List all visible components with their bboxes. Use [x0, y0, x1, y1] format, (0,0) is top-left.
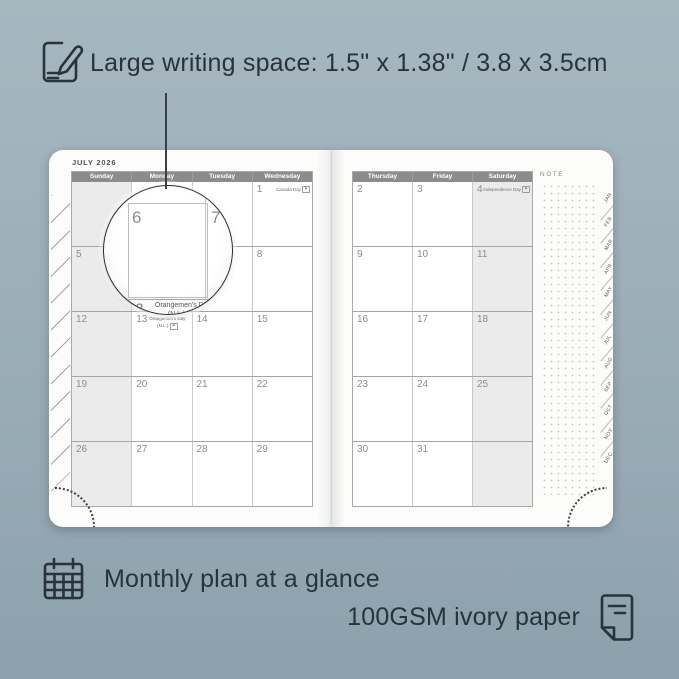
planner-product-image: Large writing space: 1.5" x 1.38" / 3.8 …: [0, 0, 679, 679]
date-number: 10: [417, 250, 428, 260]
month-tab-label: NOV: [603, 427, 613, 440]
magnifier-circle: 6 7 13 Orangemen's Day (N.L.)⚑: [103, 185, 233, 315]
calendar-row: 234Independence Day⚑: [353, 182, 532, 246]
calendar-cell: 2: [353, 182, 413, 246]
day-header-row: SundayMondayTuesdayWednesday: [72, 172, 312, 182]
calendar-cell: 24: [413, 377, 473, 441]
month-title: JULY 2026: [72, 158, 116, 167]
calendar-row: 26272829: [72, 441, 312, 506]
calendar-cell: 30: [353, 442, 413, 506]
calendar-cell: 9: [353, 247, 413, 311]
date-number: 11: [477, 250, 487, 260]
calendar-cell: 27: [132, 442, 192, 506]
date-number: 2: [357, 185, 363, 195]
calendar-row: 3031: [353, 441, 532, 506]
month-tab-label: MAR: [603, 238, 613, 251]
day-header-saturday: Saturday: [473, 172, 532, 182]
date-number: 15: [257, 315, 268, 325]
month-tab-label: OCT: [603, 404, 613, 417]
calendar-cell: 23: [353, 377, 413, 441]
date-number: 22: [257, 380, 268, 390]
calendar-cell: 8: [253, 247, 312, 311]
left-edge-hatching: [51, 195, 70, 497]
pointer-line: [165, 93, 167, 189]
date-number: 14: [197, 315, 208, 325]
calendar-cell: 14: [193, 312, 253, 376]
calendar-row: 19202122: [72, 376, 312, 441]
date-number: 19: [76, 380, 87, 390]
magnified-holiday-label: Orangemen's Day (N.L.)⚑: [140, 301, 226, 315]
day-header-monday: Monday: [132, 172, 192, 182]
day-header-friday: Friday: [413, 172, 473, 182]
pencil-note-icon: [38, 34, 84, 86]
magnified-grid-line-horizontal: [104, 299, 232, 300]
date-number: 25: [477, 380, 488, 390]
date-number: 26: [76, 445, 87, 455]
calendar-cell: 20: [132, 377, 192, 441]
date-number: 30: [357, 445, 368, 455]
day-header-tuesday: Tuesday: [193, 172, 253, 182]
day-header-sunday: Sunday: [72, 172, 132, 182]
month-tab-label: APR: [603, 262, 613, 275]
flag-icon: ⚑: [302, 186, 310, 193]
note-column-label: NOTE: [540, 171, 564, 178]
holiday-label: Canada Day⚑: [276, 186, 310, 193]
calendar-cell: 25: [473, 377, 532, 441]
date-number: 17: [417, 315, 428, 325]
calendar-cell: 3: [413, 182, 473, 246]
calendar-cell: [473, 442, 532, 506]
date-number: 28: [197, 445, 208, 455]
month-tab-label: MAY: [603, 286, 613, 299]
holiday-name: Orangemen's Day: [144, 316, 190, 323]
calendar-cell: 11: [473, 247, 532, 311]
date-number: 3: [417, 185, 423, 195]
date-number: 4: [477, 185, 483, 195]
calendar-body: 234Independence Day⚑91011161718232425303…: [353, 182, 532, 506]
calendar-row: 232425: [353, 376, 532, 441]
calendar-cell: 21: [193, 377, 253, 441]
calendar-cell: 17: [413, 312, 473, 376]
date-number: 16: [357, 315, 368, 325]
bottom-left-callout-text: Monthly plan at a glance: [104, 565, 380, 594]
date-number: 23: [357, 380, 368, 390]
month-tab-label: FEB: [603, 215, 613, 227]
holiday-label: Orangemen's Day(N.L.) ⚑: [144, 316, 190, 330]
right-page-calendar-grid: ThursdayFridaySaturday234Independence Da…: [352, 171, 533, 507]
flag-icon: ⚑: [522, 186, 530, 193]
calendar-row: 161718: [353, 311, 532, 376]
month-tab-label: AUG: [603, 357, 613, 370]
month-tab-rail: JANFEBMARAPRMAYJUNJULAUGSEPOCTNOVDEC: [600, 186, 613, 470]
day-header-row: ThursdayFridaySaturday: [353, 172, 532, 182]
holiday-line1: Orangemen's Day: [140, 301, 226, 310]
holiday-name: Independence Day: [483, 187, 521, 192]
calendar-cell: 28: [193, 442, 253, 506]
calendar-row: 1213Orangemen's Day(N.L.) ⚑1415: [72, 311, 312, 376]
top-callout-text: Large writing space: 1.5" x 1.38" / 3.8 …: [90, 49, 608, 78]
date-number: 1: [257, 185, 263, 195]
month-tab-label: DEC: [603, 451, 613, 464]
day-header-thursday: Thursday: [353, 172, 413, 182]
note-dot-grid: [541, 183, 599, 495]
magnified-date-7: 7: [211, 208, 220, 228]
month-tab-label: JUL: [603, 334, 613, 345]
calendar-cell: 1Canada Day⚑: [253, 182, 312, 246]
magnified-date-6: 6: [132, 208, 141, 228]
flag-icon: ⚑: [170, 323, 178, 330]
calendar-cell: 4Independence Day⚑: [473, 182, 532, 246]
date-number: 27: [136, 445, 147, 455]
date-number: 5: [76, 250, 82, 260]
calendar-cell: 10: [413, 247, 473, 311]
calendar-cell: 31: [413, 442, 473, 506]
month-tab-dec: DEC: [600, 446, 613, 470]
date-number: 20: [136, 380, 147, 390]
date-number: 21: [197, 380, 208, 390]
date-number: 24: [417, 380, 428, 390]
holiday-name: Canada Day: [276, 187, 301, 192]
calendar-cell: 22: [253, 377, 312, 441]
calendar-cell: 13Orangemen's Day(N.L.) ⚑: [132, 312, 192, 376]
holiday-region: (N.L.) ⚑: [144, 323, 190, 330]
date-number: 8: [257, 250, 263, 260]
date-number: 12: [76, 315, 87, 325]
paper-sheet-icon: [595, 592, 637, 647]
spine-line: [331, 153, 332, 524]
date-number: 29: [257, 445, 268, 455]
month-tab-label: JUN: [603, 310, 613, 322]
calendar-cell: 19: [72, 377, 132, 441]
calendar-cell: 12: [72, 312, 132, 376]
calendar-cell: 29: [253, 442, 312, 506]
calendar-grid-icon: [40, 555, 87, 604]
day-header-wednesday: Wednesday: [253, 172, 312, 182]
month-tab-label: SEP: [603, 381, 613, 393]
holiday-label: Independence Day⚑: [483, 186, 530, 193]
calendar-cell: 18: [473, 312, 532, 376]
date-number: 31: [417, 445, 428, 455]
calendar-cell: 16: [353, 312, 413, 376]
bottom-right-callout-text: 100GSM ivory paper: [347, 603, 580, 632]
date-number: 9: [357, 250, 363, 260]
date-number: 18: [477, 315, 488, 325]
month-tab-label: JAN: [603, 192, 613, 204]
calendar-row: 91011: [353, 246, 532, 311]
calendar-cell: 15: [253, 312, 312, 376]
